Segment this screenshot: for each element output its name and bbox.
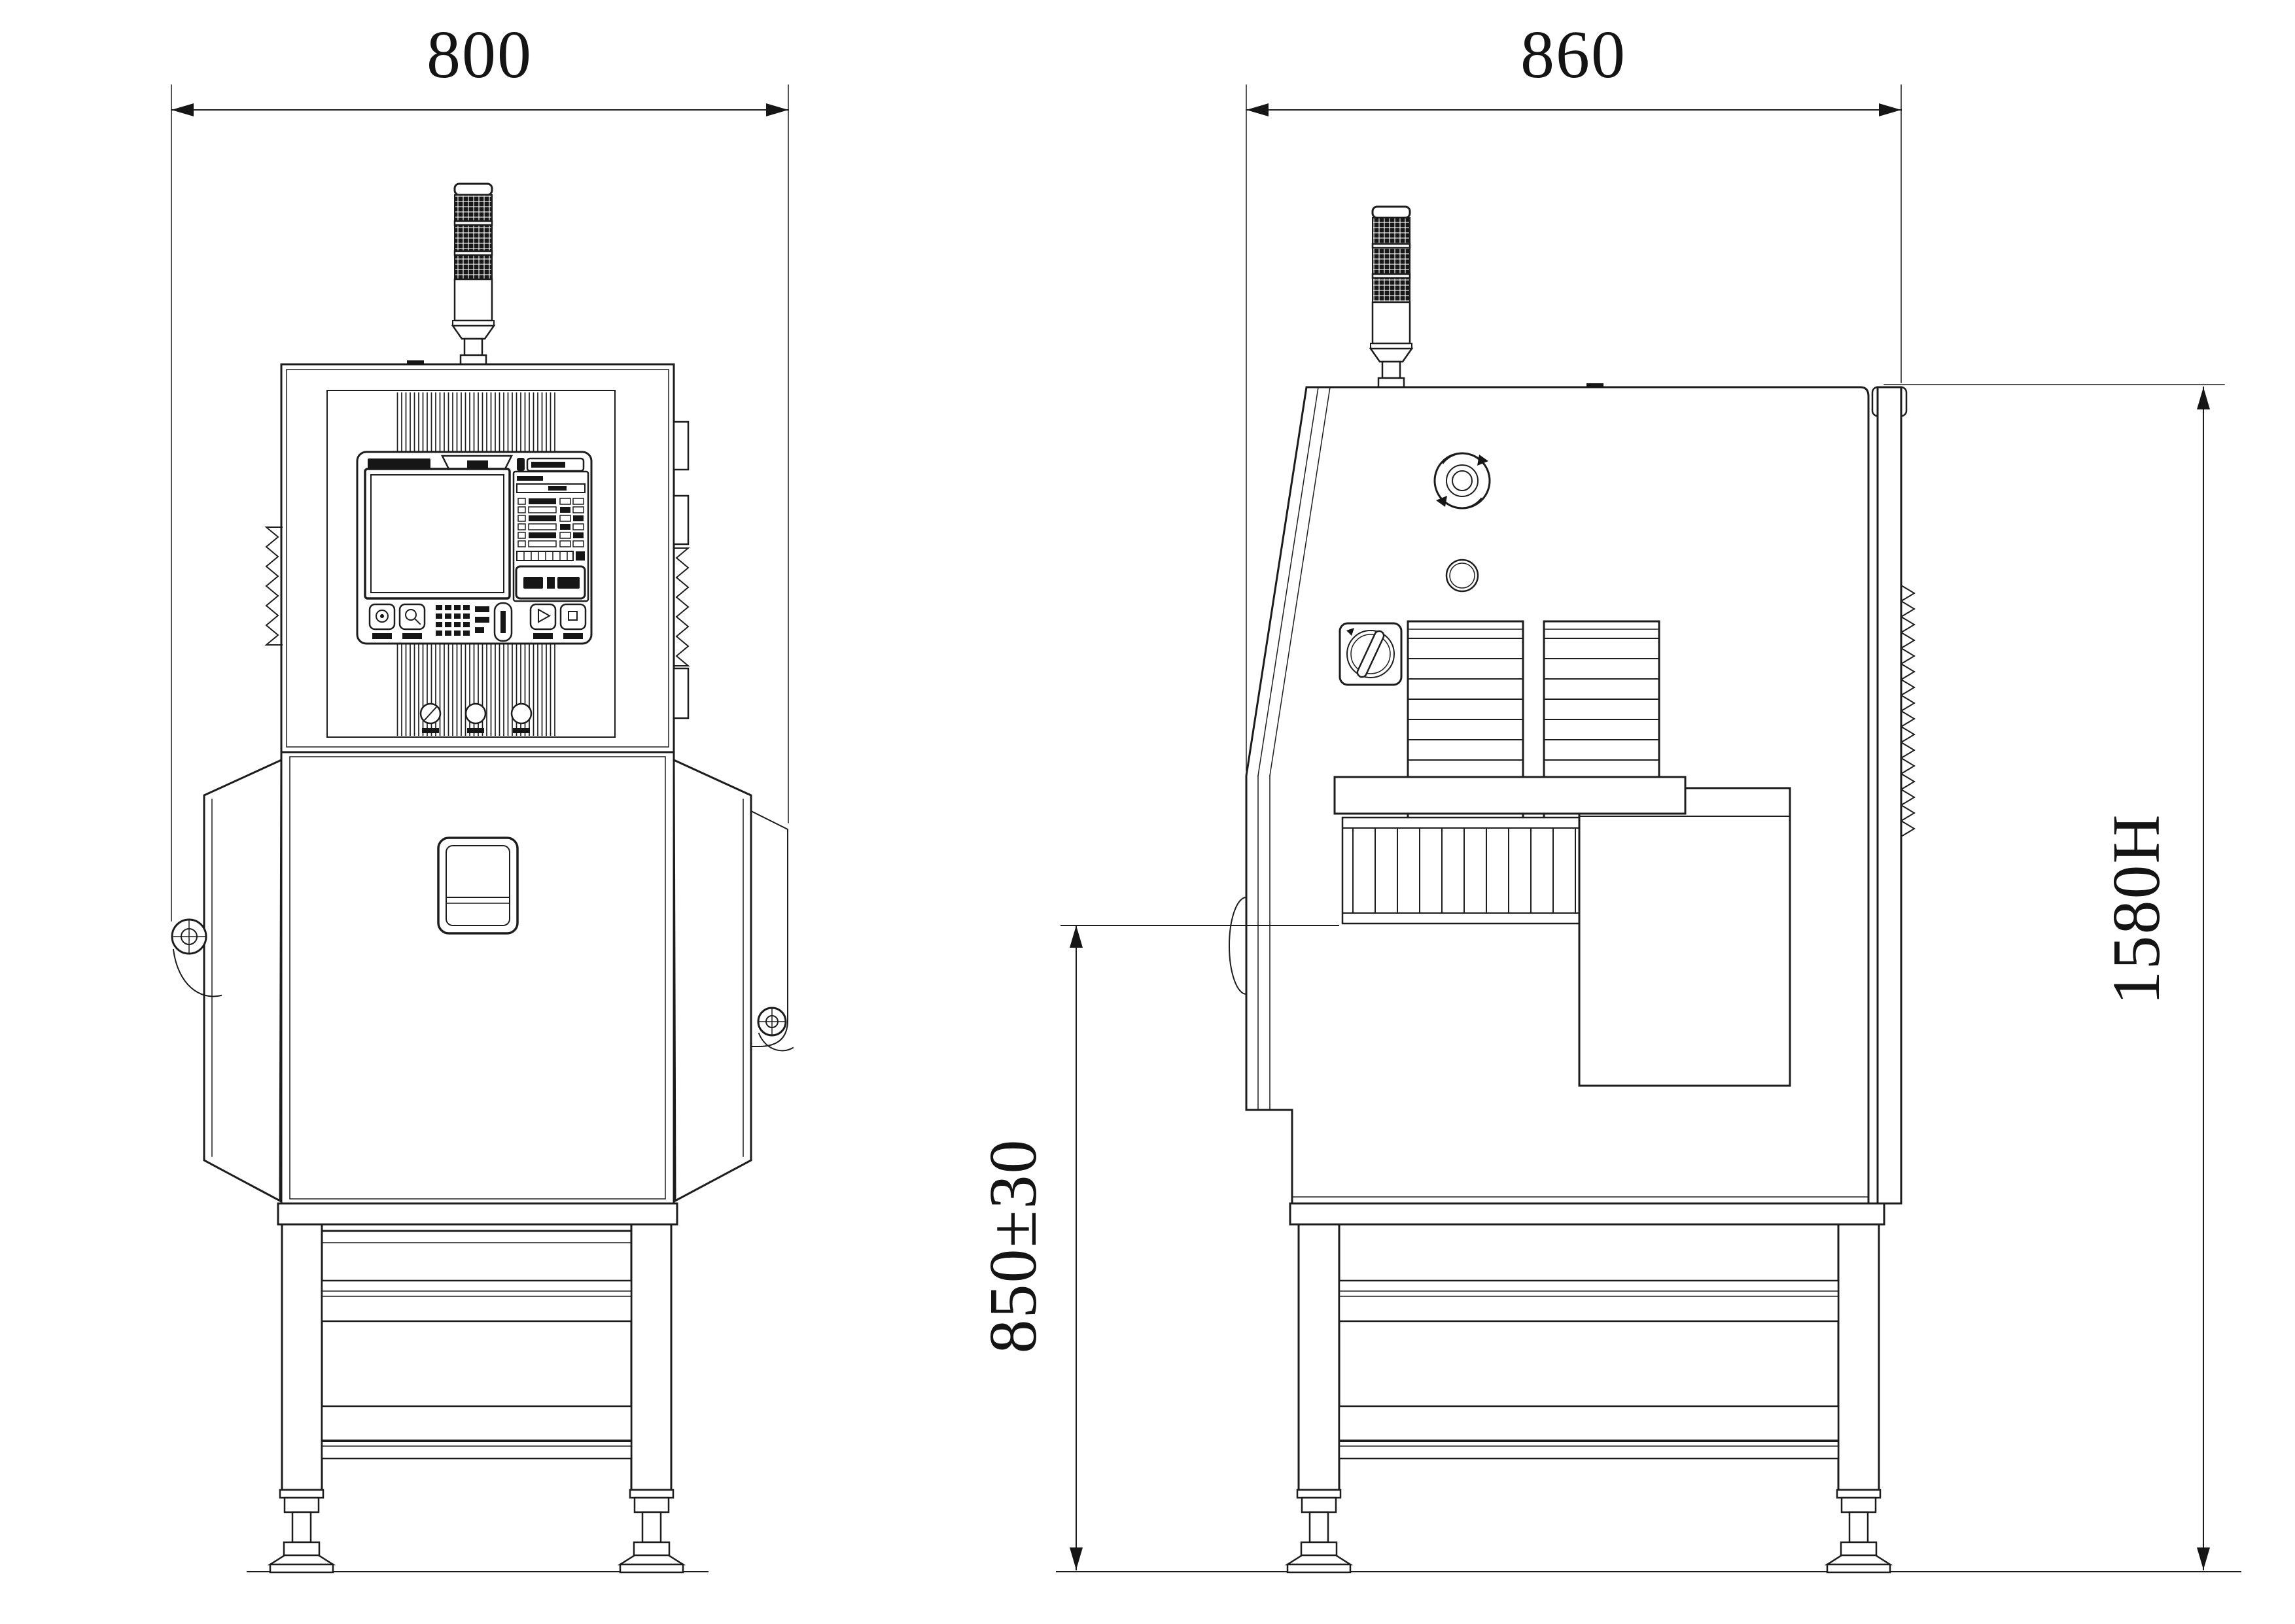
side-view xyxy=(1057,207,2241,1572)
stand-frame-front xyxy=(270,1203,683,1572)
signal-tower-front xyxy=(453,184,494,364)
tower-stem xyxy=(464,339,482,355)
stand-rail-upper xyxy=(1339,1281,1838,1321)
panel-name-glyphs xyxy=(467,460,488,468)
leveling-foot xyxy=(1288,1490,1350,1572)
tower-taper xyxy=(453,326,494,339)
dim-label-overall-height: 1580H xyxy=(2099,813,2174,1005)
stand-top-plate xyxy=(1290,1203,1884,1224)
status-indicator-fill xyxy=(531,462,565,468)
stand-frame-side xyxy=(1288,1203,1890,1572)
tower-stem xyxy=(1382,362,1400,378)
leveling-foot xyxy=(270,1490,333,1572)
heatsink-fins-left xyxy=(266,527,282,645)
tower-segment-1 xyxy=(1373,218,1410,244)
tower-mount-nut xyxy=(461,355,486,364)
push-button[interactable] xyxy=(466,704,485,723)
tower-segment-2 xyxy=(455,225,492,251)
stop-button[interactable] xyxy=(561,604,586,629)
tower-segment-2 xyxy=(1373,248,1410,274)
dim-label-belt-height: 850±30 xyxy=(975,1138,1051,1353)
stand-leg xyxy=(1838,1224,1879,1490)
front-view xyxy=(172,184,793,1572)
right-wing-panel xyxy=(674,760,751,1201)
power-icon xyxy=(517,458,525,471)
hd-glyph xyxy=(523,577,543,589)
stand-cross-bar xyxy=(285,1231,670,1283)
stand-leg xyxy=(1299,1224,1339,1490)
left-wing-panel xyxy=(204,760,281,1201)
stand-rail-lower xyxy=(1339,1406,1838,1459)
door-handle[interactable] xyxy=(438,838,517,933)
dim-label-front-width: 800 xyxy=(427,17,533,92)
progress-fill xyxy=(548,486,567,491)
key-switch-label xyxy=(422,728,439,733)
status-title xyxy=(517,476,543,481)
terminal-block xyxy=(674,496,688,544)
engineering-drawing-sheet: 800 860 1580H 850±30 xyxy=(0,0,2295,1624)
top-tick xyxy=(1586,383,1603,387)
side-access-box xyxy=(1579,788,1790,1086)
tower-cap xyxy=(455,184,492,195)
tower-segment-3 xyxy=(455,255,492,279)
tower-taper xyxy=(1371,349,1412,362)
body-outline xyxy=(281,752,674,1203)
dim-overall-height: 1580H xyxy=(1884,385,2224,1570)
push-button-label xyxy=(467,728,484,733)
touch-screen[interactable] xyxy=(365,469,510,598)
leveling-foot xyxy=(620,1490,683,1572)
tower-mount-nut xyxy=(1378,378,1404,387)
slider-handle xyxy=(500,611,506,633)
signal-tower-side xyxy=(1371,207,1412,387)
tower-body xyxy=(455,279,492,320)
rear-panel-strip xyxy=(1878,387,1901,1203)
stand-leg xyxy=(282,1224,322,1490)
start-button[interactable] xyxy=(531,604,555,629)
dim-label-side-width: 860 xyxy=(1520,17,1626,92)
stand-top-plate xyxy=(278,1203,677,1224)
tower-segment-3 xyxy=(1373,278,1410,302)
machine-body-side xyxy=(1229,383,1868,1203)
stand-rail-lower xyxy=(322,1406,631,1459)
status-panel xyxy=(514,472,588,601)
drawing-canvas: 800 860 1580H 850±30 xyxy=(0,0,2295,1624)
menu-button-label xyxy=(372,633,392,639)
front-edge-arc xyxy=(1229,897,1246,994)
push-button-label xyxy=(513,728,530,733)
terminal-block xyxy=(674,668,688,718)
hd-glyph xyxy=(557,577,580,589)
heatsink-fins-rear xyxy=(1901,585,1914,837)
tower-body xyxy=(1373,302,1410,343)
inspect-button[interactable] xyxy=(400,604,425,629)
start-button-label xyxy=(533,633,553,639)
stand-rail-upper xyxy=(322,1281,631,1321)
leveling-foot xyxy=(1827,1490,1890,1572)
stop-button-label xyxy=(563,633,583,639)
heatsink-fins-right xyxy=(674,548,688,666)
indicator-port xyxy=(1446,560,1478,591)
tower-segment-1 xyxy=(455,195,492,221)
inspect-button-label xyxy=(402,633,422,639)
hd-glyph xyxy=(547,577,555,589)
ticker-cap xyxy=(576,551,585,561)
push-buttons-row xyxy=(421,704,531,733)
conveyor-top-plate xyxy=(1335,777,1685,814)
terminal-block xyxy=(674,422,688,470)
tower-cap xyxy=(1373,207,1410,218)
rotary-main-switch[interactable] xyxy=(1340,623,1401,685)
emergency-stop-button[interactable] xyxy=(1435,453,1490,508)
stand-leg xyxy=(631,1224,671,1490)
push-button[interactable] xyxy=(512,704,531,723)
brand-logo xyxy=(368,458,430,468)
curtain-frame xyxy=(1342,818,1599,924)
top-tick xyxy=(407,360,424,364)
lower-body xyxy=(172,752,793,1203)
